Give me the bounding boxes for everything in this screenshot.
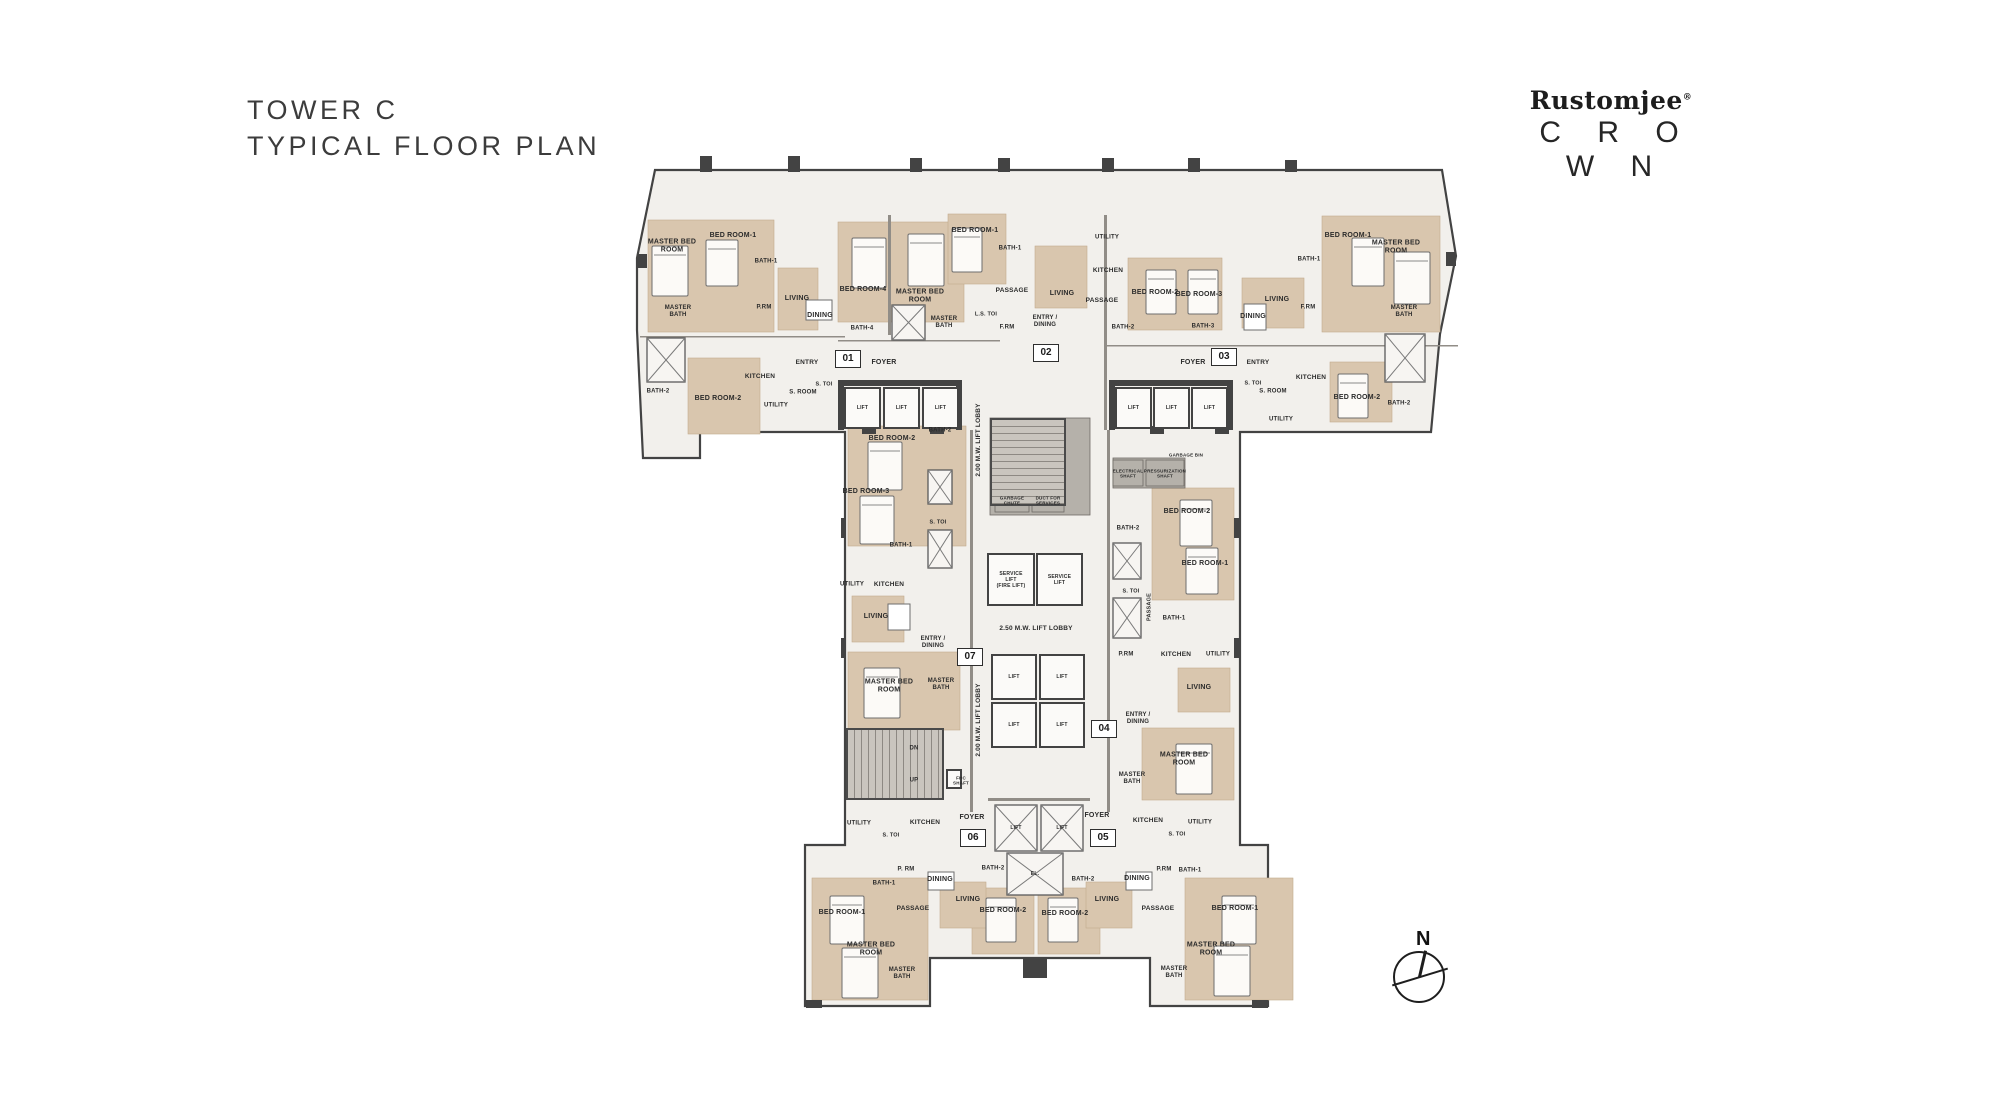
room-label: LIVING bbox=[1164, 684, 1234, 692]
room-label: S. TOI bbox=[1142, 832, 1212, 839]
room-label: BED ROOM-1 bbox=[940, 227, 1010, 235]
room-label: S. TOI bbox=[856, 833, 926, 840]
room-label: ENTRY / DINING bbox=[1010, 315, 1080, 329]
room-label: MASTER BED ROOM bbox=[1149, 752, 1219, 769]
staircase bbox=[846, 728, 944, 800]
lift-label: LIFT bbox=[1042, 722, 1082, 728]
room-label: BATH-2 bbox=[905, 427, 975, 434]
room-label: PASSAGE bbox=[878, 905, 948, 913]
lift-label: LIFT bbox=[886, 405, 917, 411]
room-label: UTILITY bbox=[1072, 234, 1142, 241]
lift-label: LIFT bbox=[925, 405, 956, 411]
room-label: DINING bbox=[785, 312, 855, 320]
lift-label: LIFT bbox=[1042, 674, 1082, 680]
room-label: BED ROOM-3 bbox=[831, 488, 901, 496]
room-label: MASTER BATH bbox=[1369, 305, 1439, 319]
room-label: BATH-4 bbox=[827, 325, 897, 332]
unit-badge: 05 bbox=[1090, 829, 1116, 847]
room-label: BATH-1 bbox=[731, 258, 801, 265]
room-label: P. RM bbox=[871, 866, 941, 873]
room-label: P.RM bbox=[729, 304, 799, 311]
room-label: GARBAGE BIN bbox=[1166, 452, 1206, 457]
room-label: LIVING bbox=[1242, 296, 1312, 304]
room-label: PASSAGE bbox=[1067, 297, 1137, 305]
room-label: BATH-2 bbox=[1088, 324, 1158, 331]
room-label: MASTER BATH bbox=[867, 967, 937, 981]
room-label: BATH-3 bbox=[1168, 323, 1238, 330]
lift-label: LIFT bbox=[1118, 405, 1149, 411]
room-label: DINING bbox=[905, 876, 975, 884]
room-label: KITCHEN bbox=[1113, 817, 1183, 825]
room-label: BED ROOM-2 bbox=[683, 395, 753, 403]
room-label: UTILITY bbox=[741, 402, 811, 409]
room-label: 2.50 M.W. LIFT LOBBY bbox=[966, 625, 1106, 633]
room-label: KITCHEN bbox=[854, 581, 924, 589]
room-label: MASTER BED ROOM bbox=[1176, 942, 1246, 959]
room-label: KITCHEN bbox=[1276, 374, 1346, 382]
room-label: BED ROOM-2 bbox=[1152, 508, 1222, 516]
room-label: MASTER BATH bbox=[1139, 966, 1209, 980]
room-label: LIVING bbox=[1072, 896, 1142, 904]
unit-badge: 01 bbox=[835, 350, 861, 368]
room-label: S. TOI bbox=[1096, 589, 1166, 596]
room-label: DINING bbox=[1102, 875, 1172, 883]
room-label: BED ROOM-1 bbox=[698, 232, 768, 240]
room-label: UTILITY bbox=[1246, 416, 1316, 423]
room-label: MASTER BED ROOM bbox=[836, 942, 906, 959]
room-label: MASTER BATH bbox=[1097, 772, 1167, 786]
room-label: BED ROOM-2 bbox=[968, 907, 1038, 915]
room-label: FHC SHAFT bbox=[926, 776, 996, 787]
room-label: 2.00 M.W. LIFT LOBBY bbox=[975, 340, 983, 540]
lift-label: LIFT bbox=[994, 674, 1034, 680]
room-label: F.RM bbox=[1273, 304, 1343, 311]
room-label: S. TOI bbox=[789, 382, 859, 389]
room-label: BATH-1 bbox=[975, 245, 1045, 252]
lift-label: LIFT bbox=[994, 722, 1034, 728]
room-label: ENTRY bbox=[772, 359, 842, 367]
room-label: BED ROOM-1 bbox=[1200, 905, 1270, 913]
room-label: LIVING bbox=[933, 896, 1003, 904]
room-label: S. ROOM bbox=[1238, 388, 1308, 395]
lift-label: LIFT bbox=[1194, 405, 1225, 411]
north-compass-icon bbox=[1393, 951, 1445, 1003]
room-label: KITCHEN bbox=[1073, 267, 1143, 275]
room-label: PRESSURIZATION SHAFT bbox=[1130, 469, 1200, 480]
room-label: LIVING bbox=[762, 295, 832, 303]
room-label: MASTER BATH bbox=[906, 678, 976, 692]
unit-badge: 07 bbox=[957, 648, 983, 666]
floor-plan-labels: LIFTLIFTLIFTLIFTLIFTLIFTSERVICE LIFT (FI… bbox=[0, 0, 2008, 1116]
unit-badge: 02 bbox=[1033, 344, 1059, 362]
room-label: BATH-1 bbox=[1274, 256, 1344, 263]
room-label: BATH-2 bbox=[1093, 525, 1163, 532]
room-label: DN bbox=[879, 745, 949, 752]
room-label: BATH-2 bbox=[958, 865, 1028, 872]
lift-label: SERVICE LIFT bbox=[1039, 574, 1080, 586]
room-label: MASTER BATH bbox=[643, 305, 713, 319]
unit-badge: 04 bbox=[1091, 720, 1117, 738]
room-label: BED ROOM-1 bbox=[807, 909, 877, 917]
room-label: KITCHEN bbox=[725, 373, 795, 381]
lift-label: LIFT bbox=[847, 405, 878, 411]
room-label: BATH-1 bbox=[866, 542, 936, 549]
room-label: LIVING bbox=[841, 613, 911, 621]
room-label: BED ROOM-2 bbox=[1030, 910, 1100, 918]
shaft-label: LIFT bbox=[1042, 825, 1082, 831]
lift-label: SERVICE LIFT (FIRE LIFT) bbox=[990, 571, 1032, 589]
floor-plan: LIFTLIFTLIFTLIFTLIFTLIFTSERVICE LIFT (FI… bbox=[0, 0, 2008, 1116]
room-label: S. TOI bbox=[903, 520, 973, 527]
room-label: BATH-1 bbox=[1155, 867, 1225, 874]
shaft-label: LIFT bbox=[996, 825, 1036, 831]
room-label: DUCT FOR SERVICES bbox=[1013, 496, 1083, 507]
unit-badge: 06 bbox=[960, 829, 986, 847]
room-label: MASTER BED ROOM bbox=[1361, 240, 1431, 257]
room-label: BATH-1 bbox=[1139, 615, 1209, 622]
room-label: S. ROOM bbox=[768, 389, 838, 396]
room-label: PASSAGE bbox=[1147, 572, 1154, 642]
compass-north-label: N bbox=[1416, 928, 1430, 951]
staircase bbox=[990, 418, 1066, 506]
floor-plan-page: TOWER C TYPICAL FLOOR PLAN Rustomjee® C … bbox=[0, 0, 2008, 1116]
room-label: BED ROOM-1 bbox=[1170, 560, 1240, 568]
lift-label: LIFT bbox=[1156, 405, 1187, 411]
room-label: DINING bbox=[1218, 313, 1288, 321]
room-label: KITCHEN bbox=[890, 819, 960, 827]
room-label: BED ROOM-3 bbox=[1164, 291, 1234, 299]
room-label: PASSAGE bbox=[1123, 905, 1193, 913]
room-label: UTILITY bbox=[824, 820, 894, 827]
room-label: UTILITY bbox=[1183, 651, 1253, 658]
room-label: MASTER BED ROOM bbox=[885, 289, 955, 306]
room-label: BATH-2 bbox=[1364, 400, 1434, 407]
room-label: BED ROOM-2 bbox=[857, 435, 927, 443]
room-label: ENTRY / DINING bbox=[910, 636, 956, 650]
unit-badge: 03 bbox=[1211, 348, 1237, 366]
room-label: MASTER BED ROOM bbox=[637, 239, 707, 256]
